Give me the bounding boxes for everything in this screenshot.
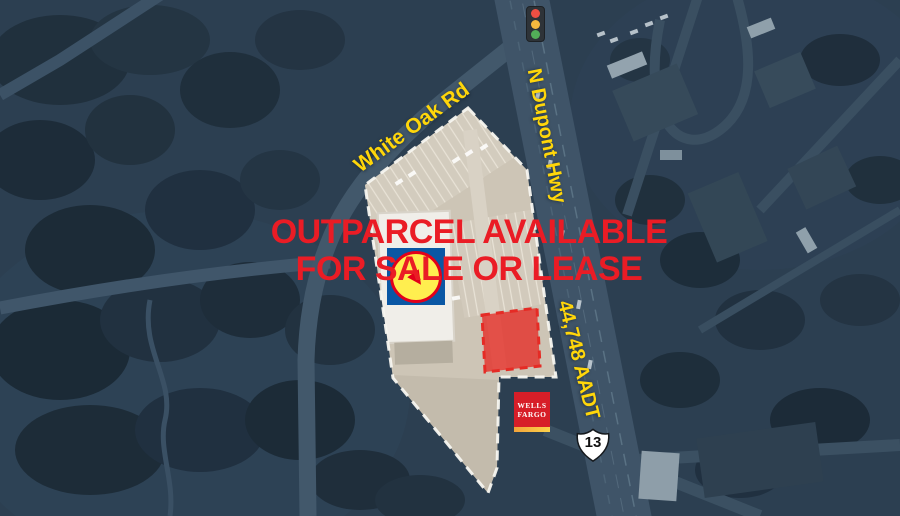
aerial-flyer-map: WELLS FARGO 13 White Oak Rd N Dupont Hwy… <box>0 0 900 516</box>
headline: OUTPARCEL AVAILABLE FOR SALE OR LEASE <box>271 214 668 288</box>
traffic-light-green <box>531 30 540 39</box>
headline-line2: FOR SALE OR LEASE <box>271 251 668 288</box>
wells-fargo-yellow-bar <box>514 427 550 432</box>
wells-fargo-sign: WELLS FARGO <box>514 392 550 432</box>
wells-fargo-line2: FARGO <box>517 410 546 419</box>
wells-fargo-line1: WELLS <box>517 401 546 410</box>
traffic-light-amber <box>531 20 540 29</box>
headline-line1: OUTPARCEL AVAILABLE <box>271 214 668 251</box>
traffic-light-red <box>531 9 540 18</box>
us-route-13-shield: 13 <box>574 427 612 463</box>
outparcel-highlight <box>482 308 540 372</box>
route-number: 13 <box>574 434 612 451</box>
traffic-light-icon <box>526 6 545 42</box>
